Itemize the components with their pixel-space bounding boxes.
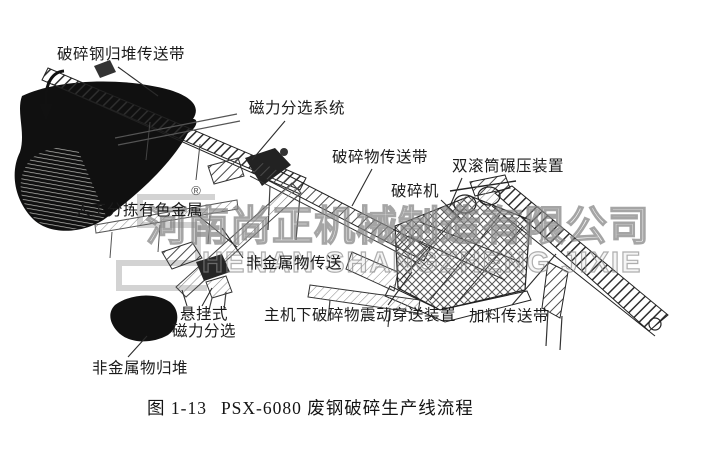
label-nonmetal-conveying: 非金属物传送: [246, 255, 342, 272]
label-suspended-magnetic-line1: 悬挂式: [172, 306, 236, 323]
label-feeding-conveyor: 加料传送带: [469, 308, 549, 325]
label-crushed-steel-pile-conveyor: 破碎钢归堆传送带: [57, 46, 185, 63]
label-suspended-magnetic: 悬挂式 磁力分选: [172, 306, 236, 340]
figure-caption: 图 1-13PSX-6080 废钢破碎生产线流程: [147, 395, 474, 420]
label-double-roller-press: 双滚筒碾压装置: [452, 158, 564, 175]
figure-title: PSX-6080 废钢破碎生产线流程: [221, 398, 474, 418]
label-nonmetal-pile: 非金属物归堆: [92, 360, 188, 377]
label-magnetic-separation-system: 磁力分选系统: [249, 100, 345, 117]
label-suspended-magnetic-line2: 磁力分选: [172, 323, 236, 340]
figure-page: ® 河南尚正机械制造有限公司 HENAN SHANGZHENG JIXIE 破碎…: [0, 0, 701, 449]
label-manual-sorting-nonferrous: 人工分拣有色金属: [75, 202, 203, 219]
label-crushed-material-conveyor: 破碎物传送带: [332, 149, 428, 166]
figure-number: 图 1-13: [147, 398, 207, 418]
label-under-main-vibrating-conveyor: 主机下破碎物震动穿送装置: [264, 307, 456, 324]
callout-labels: 破碎钢归堆传送带 磁力分选系统 破碎物传送带 破碎机 双滚筒碾压装置 人工分拣有…: [0, 0, 701, 449]
label-crusher: 破碎机: [391, 183, 439, 200]
